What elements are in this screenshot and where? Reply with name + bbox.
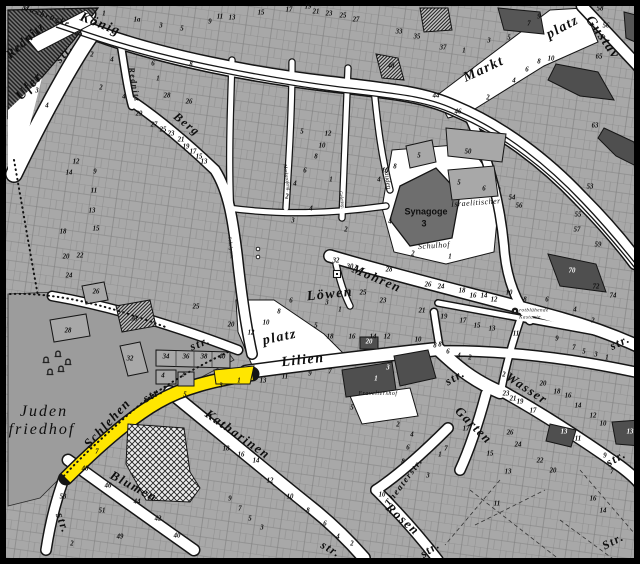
building-20-dark bbox=[360, 337, 378, 349]
building-26 bbox=[82, 282, 108, 304]
building-row-34-40 bbox=[156, 350, 230, 368]
tree-icon bbox=[512, 308, 519, 315]
map-canvas bbox=[0, 0, 640, 564]
building-30-hatched bbox=[116, 300, 156, 332]
building-hatched-topright bbox=[420, 8, 452, 32]
square-marker-icon bbox=[334, 271, 341, 278]
city-map: MaxbrückeRednitzKönigstr.UferRednitzBerg… bbox=[0, 0, 640, 564]
